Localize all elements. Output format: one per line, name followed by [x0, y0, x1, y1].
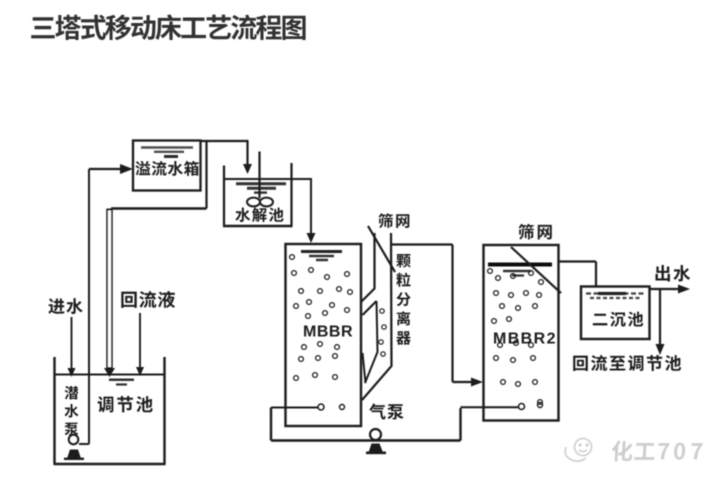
svg-text:MBBR2: MBBR2 [493, 331, 557, 348]
svg-text:MBBR: MBBR [303, 324, 353, 341]
